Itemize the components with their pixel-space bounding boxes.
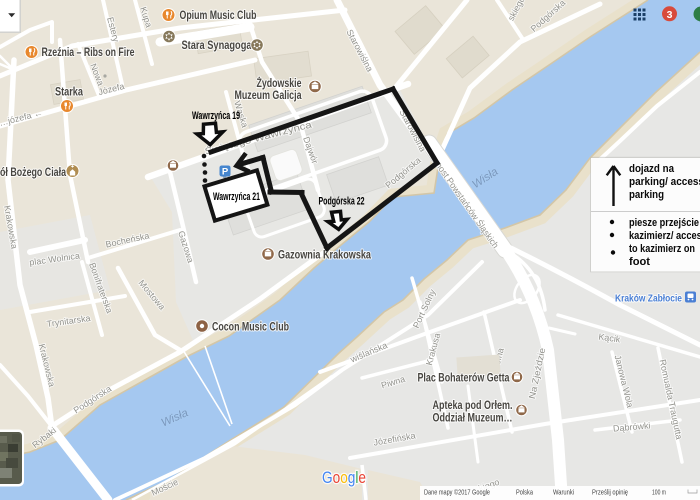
svg-text:Polska: Polska (516, 488, 534, 497)
svg-text:kazimierz/ access: kazimierz/ access (629, 230, 700, 242)
svg-text:foot: foot (629, 256, 650, 268)
svg-text:Muzeum Galicja: Muzeum Galicja (235, 90, 302, 102)
svg-text:Cocon Music Club: Cocon Music Club (212, 322, 289, 334)
svg-text:Prześlij opinię: Prześlij opinię (592, 488, 628, 497)
svg-text:Oddział Muzeum…: Oddział Muzeum… (433, 413, 513, 425)
svg-text:Dane mapy ©2017 Google: Dane mapy ©2017 Google (424, 488, 490, 497)
svg-text:Kraków Zabłocie: Kraków Zabłocie (615, 293, 682, 305)
svg-text:ół Bożego Ciała: ół Bożego Ciała (0, 167, 66, 179)
svg-text:Żydowskie: Żydowskie (257, 77, 302, 90)
svg-text:to kazimierz on: to kazimierz on (629, 243, 695, 255)
svg-text:100 m: 100 m (652, 488, 666, 497)
svg-text:dojazd na: dojazd na (629, 163, 675, 175)
svg-text:Google: Google (322, 469, 366, 487)
svg-text:Gazownia Krakowska: Gazownia Krakowska (278, 250, 371, 262)
svg-text:Warunki: Warunki (553, 488, 574, 497)
svg-text:Podgórska 22: Podgórska 22 (319, 196, 365, 208)
svg-text:piesze przejście: piesze przejście (629, 217, 699, 229)
svg-text:Stara Synagoga: Stara Synagoga (182, 40, 252, 52)
svg-text:Wawrzyńca 19: Wawrzyńca 19 (192, 110, 240, 122)
svg-text:parking/ access: parking/ access (629, 176, 700, 188)
svg-text:P: P (222, 167, 229, 178)
svg-text:Opium Music Club: Opium Music Club (180, 10, 257, 22)
svg-text:3: 3 (667, 9, 673, 21)
svg-text:Apteka pod Orłem.: Apteka pod Orłem. (433, 400, 513, 412)
svg-text:Rzeźnia – Ribs on Fire: Rzeźnia – Ribs on Fire (42, 47, 135, 59)
svg-text:Starka: Starka (55, 87, 83, 99)
svg-text:parking: parking (629, 189, 664, 201)
svg-text:Wawrzyńca 21: Wawrzyńca 21 (213, 191, 260, 203)
svg-text:Plac Bohaterów Getta: Plac Bohaterów Getta (418, 373, 510, 385)
